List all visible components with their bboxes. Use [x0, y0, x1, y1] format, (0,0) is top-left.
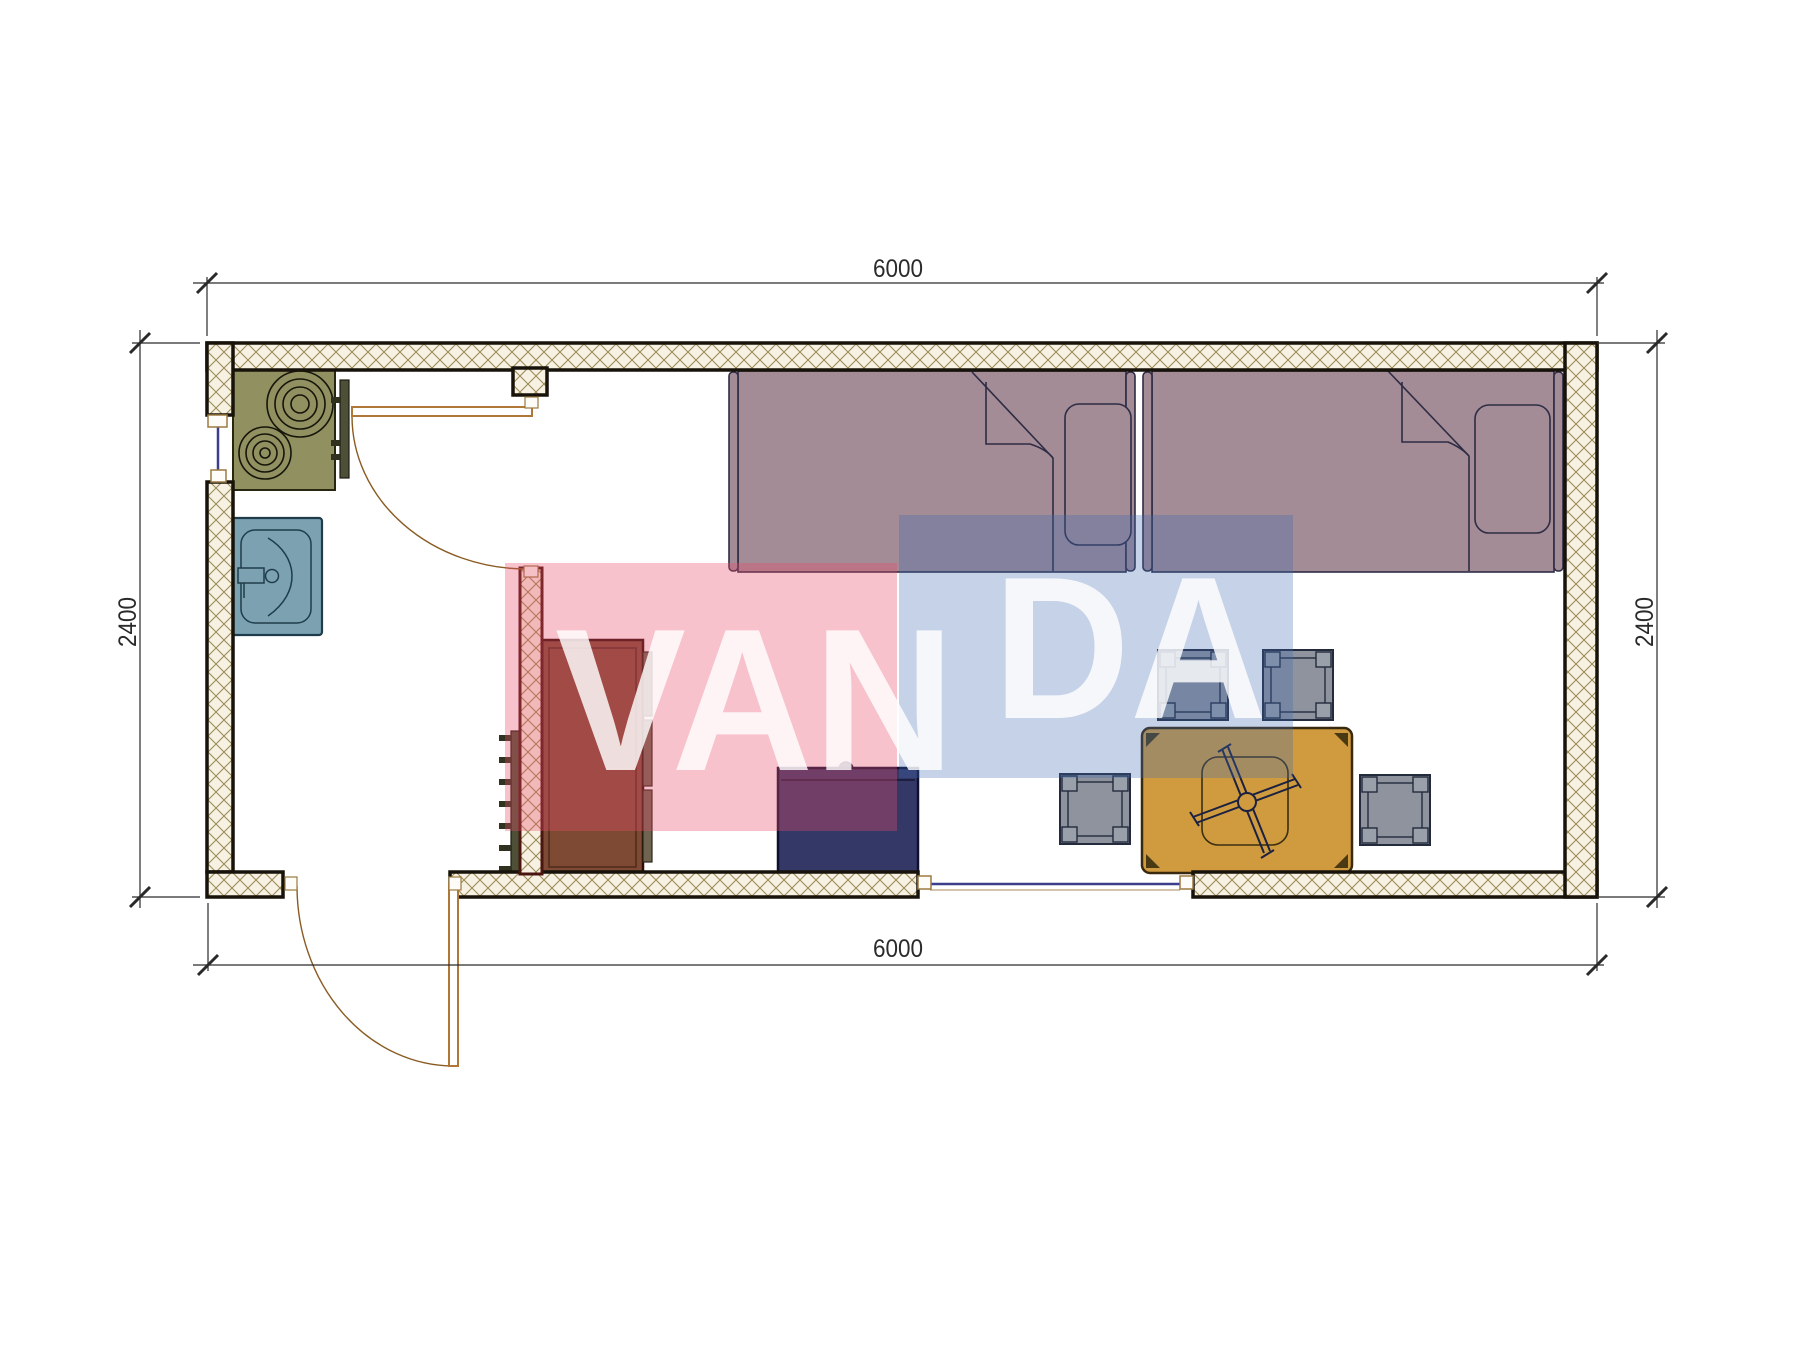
dimension-top: 6000: [193, 255, 1607, 336]
stool-leg: [1113, 776, 1128, 791]
wall-bottom-middle: [450, 872, 918, 897]
window-jamb-cap: [211, 470, 226, 482]
door-jamb-stub: [513, 368, 547, 395]
stool-leg: [1062, 827, 1077, 842]
floor-plan-page: 6000 6000 2400 2400: [0, 0, 1800, 1350]
dimension-left: 2400: [114, 330, 200, 908]
stool-leg: [1062, 776, 1077, 791]
stool-leg: [1362, 777, 1377, 792]
window-jamb-cap: [208, 415, 227, 427]
floor-plan-drawing: 6000 6000 2400 2400: [0, 0, 1800, 1350]
wall-left-upper: [207, 343, 233, 415]
radiator-fin: [499, 845, 511, 851]
door-leaf: [449, 884, 458, 1066]
cooktop-knob: [331, 454, 340, 460]
door-jamb-cap: [449, 877, 461, 890]
watermark-text-part1: VAN: [555, 587, 955, 814]
cooktop: [233, 370, 349, 490]
window-jamb-cap: [918, 876, 931, 889]
dimension-value-bottom: 6000: [873, 935, 923, 963]
door-jamb-cap: [285, 877, 297, 890]
faucet-icon: [238, 568, 264, 583]
wall-left-lower: [207, 482, 233, 872]
cooktop-knob: [331, 440, 340, 446]
door-leaf: [352, 407, 532, 416]
entrance-door: [285, 877, 461, 1066]
stool-leg: [1413, 777, 1428, 792]
stool: [1360, 775, 1430, 845]
stool-leg: [1413, 828, 1428, 843]
dimension-value-right: 2400: [1631, 597, 1659, 647]
pillow: [1475, 405, 1550, 533]
dimension-bottom: 6000: [193, 903, 1607, 975]
stool: [1060, 774, 1130, 844]
cooktop-side-panel: [340, 380, 349, 478]
dimension-right: 2400: [1597, 330, 1667, 908]
bathroom-door: [352, 397, 538, 577]
stool-leg: [1113, 827, 1128, 842]
wall-top: [207, 343, 1597, 370]
window-left: [208, 415, 227, 482]
door-swing-arc: [352, 416, 527, 569]
stool-leg: [1316, 652, 1331, 667]
wall-right: [1565, 343, 1597, 897]
wall-bottom-right: [1193, 872, 1597, 897]
dimension-value-top: 6000: [873, 255, 923, 283]
cooktop-knob: [331, 397, 340, 403]
stool-leg: [1316, 703, 1331, 718]
window-bottom: [918, 876, 1193, 890]
stool-leg: [1362, 828, 1377, 843]
wall-bottom-left-stub: [207, 872, 283, 897]
window-jamb-cap: [1180, 876, 1193, 889]
bed-headboard: [729, 372, 738, 571]
dimension-value-left: 2400: [114, 597, 142, 647]
door-hinge-cap: [525, 397, 538, 408]
watermark-text-part2: DA: [993, 535, 1267, 762]
door-swing-arc: [297, 886, 454, 1066]
kitchen-sink: [230, 518, 322, 635]
bed-footboard: [1554, 372, 1563, 571]
